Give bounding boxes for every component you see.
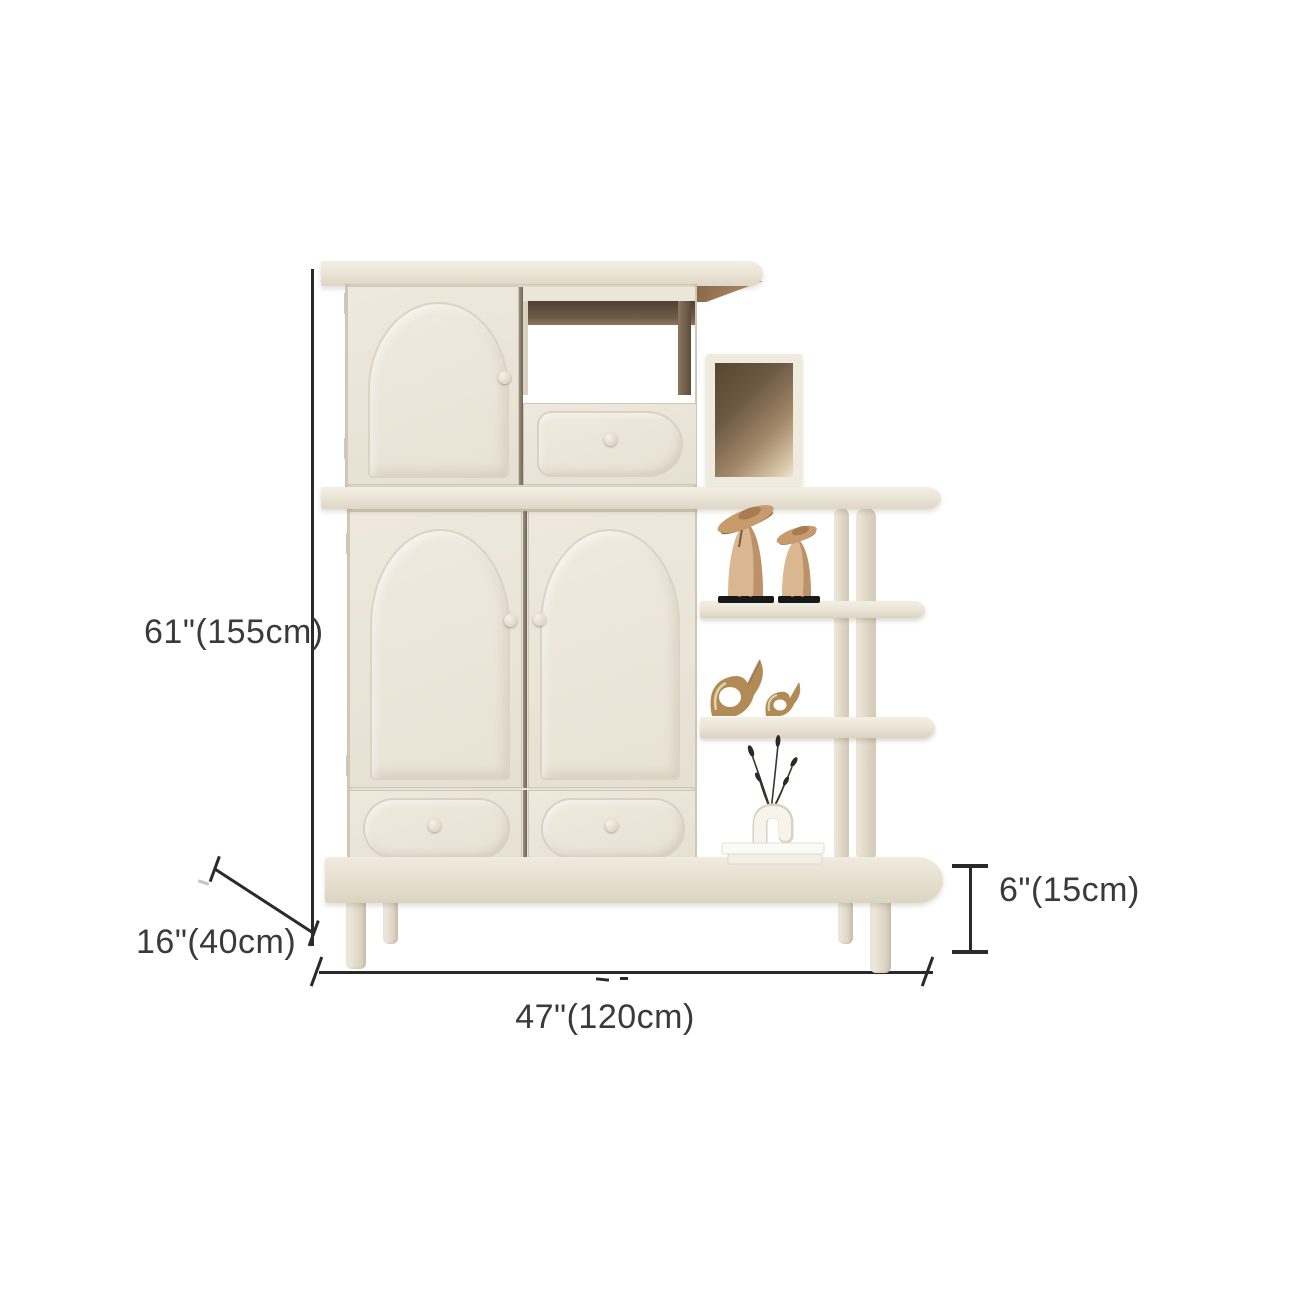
niche-interior-left-wall: [523, 301, 528, 395]
niche-top-frame: [523, 287, 695, 301]
lower-cabinet-divider: [523, 511, 527, 788]
front-right-leg: [870, 901, 891, 973]
lower-left-door-arch-panel: [370, 529, 510, 780]
bottom-left-drawer-knob: [428, 819, 441, 832]
vase-dried-stems-icon: [692, 735, 852, 870]
back-left-leg: [383, 901, 398, 944]
shelf-post-front: [856, 508, 876, 862]
base-height-dimension-label: 6"(15cm): [999, 871, 1140, 910]
width-dimension-line: [319, 971, 933, 974]
upper-left-door: [347, 286, 519, 485]
wooden-bird-figurines-icon: [712, 503, 824, 605]
niche-interior-right-wall: [678, 301, 691, 395]
upper-open-niche: [523, 287, 695, 403]
top-board: [321, 261, 763, 286]
back-right-leg: [838, 901, 853, 944]
middle-board: [321, 487, 941, 509]
depth-dimension-tick-start: [209, 856, 221, 882]
front-left-leg: [346, 901, 366, 969]
upper-left-door-arch-panel: [368, 302, 509, 478]
width-dimension-label: 47"(120cm): [455, 998, 755, 1037]
brass-elephant-figurines-icon: [702, 648, 812, 720]
upper-drawer-knob: [604, 433, 617, 446]
lower-right-door-arch-panel: [540, 529, 680, 780]
photo-artifact-smudge: [198, 879, 209, 885]
lower-right-door: [528, 511, 696, 788]
bottom-right-drawer-knob: [605, 819, 618, 832]
base-height-cap-top: [952, 864, 988, 868]
width-line-artifact-dash-2: [620, 977, 628, 980]
display-cube: [706, 354, 802, 487]
lower-right-door-knob: [533, 613, 546, 626]
product-dimension-diagram: 61"(155cm) 16"(40cm) 47"(120cm) 6"(15cm): [0, 0, 1300, 1300]
width-line-artifact-dash-1: [596, 977, 609, 981]
display-cube-interior: [715, 363, 793, 477]
height-dimension-label: 61"(155cm): [144, 613, 324, 652]
lower-left-door: [349, 511, 522, 788]
depth-dimension-label: 16"(40cm): [136, 923, 296, 962]
base-height-dimension-line: [969, 866, 972, 953]
niche-interior-top-shadow: [523, 301, 695, 325]
base-height-cap-bottom: [952, 950, 988, 954]
upper-left-door-knob: [498, 371, 511, 384]
lower-left-door-knob: [504, 614, 517, 627]
depth-dimension-tick-end: [308, 920, 320, 946]
bottom-drawer-divider: [523, 790, 527, 866]
height-dimension-line: [311, 269, 314, 946]
